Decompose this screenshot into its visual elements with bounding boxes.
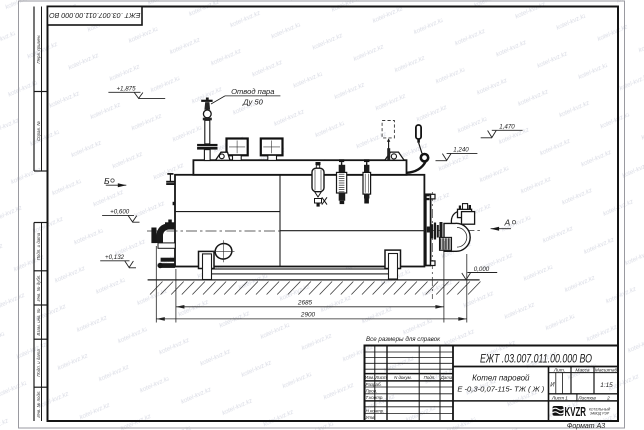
svg-text:+1,875: +1,875 <box>116 86 136 93</box>
svg-text:Дата: Дата <box>440 375 453 380</box>
svg-text:Подп. и дата: Подп. и дата <box>36 232 41 260</box>
svg-text:+0,132: +0,132 <box>105 254 125 261</box>
svg-text:И: И <box>550 383 555 389</box>
svg-text:Инв. № подл.: Инв. № подл. <box>36 390 41 417</box>
svg-text:Пров.: Пров. <box>366 388 378 393</box>
svg-text:+0,600: +0,600 <box>110 209 130 216</box>
svg-text:1,470: 1,470 <box>499 124 515 131</box>
svg-text:Все размеры для справок: Все размеры для справок <box>366 336 441 343</box>
svg-text:Формат А3: Формат А3 <box>567 423 605 430</box>
svg-text:Т.контр.: Т.контр. <box>366 395 384 400</box>
svg-text:Разраб.: Разраб. <box>366 382 382 387</box>
svg-text:Лит.: Лит. <box>553 367 565 373</box>
svg-text:1: 1 <box>565 395 568 401</box>
svg-text:Инв. № дубл.: Инв. № дубл. <box>36 274 41 301</box>
svg-text:KVZR: KVZR <box>565 404 587 419</box>
svg-text:ЗАВОД РЭР: ЗАВОД РЭР <box>590 412 610 416</box>
svg-text:Масса: Масса <box>575 367 590 373</box>
svg-text:Подп.: Подп. <box>424 375 436 380</box>
svg-text:Изм.: Изм. <box>365 375 374 380</box>
svg-text:0,000: 0,000 <box>474 266 490 273</box>
svg-text:Отвод пара: Отвод пара <box>231 87 274 96</box>
svg-text:Лист: Лист <box>374 375 387 380</box>
svg-text:Лист: Лист <box>551 395 564 401</box>
svg-text:2685: 2685 <box>297 300 313 307</box>
svg-text:1,240: 1,240 <box>453 147 469 154</box>
svg-text:ЕЖТ .03.007.011.00.000 ВО: ЕЖТ .03.007.011.00.000 ВО <box>480 353 592 365</box>
svg-text:2: 2 <box>606 395 610 401</box>
svg-text:А: А <box>504 217 511 227</box>
svg-text:Справ. №: Справ. № <box>36 121 41 141</box>
svg-text:Листов: Листов <box>577 395 596 401</box>
svg-text:N докум.: N докум. <box>394 375 412 380</box>
svg-text:Масштаб: Масштаб <box>595 367 618 373</box>
svg-text:Подп. и дата: Подп. и дата <box>36 349 41 377</box>
svg-text:Б: Б <box>104 176 110 186</box>
svg-text:Н.контр.: Н.контр. <box>366 409 385 414</box>
svg-text:1:15: 1:15 <box>600 382 613 389</box>
svg-text:2900: 2900 <box>300 312 316 319</box>
svg-text:Перв. примен.: Перв. примен. <box>36 34 41 63</box>
svg-text:Котел паровой: Котел паровой <box>472 374 530 383</box>
svg-text:Е -0,3-0,07-115- ТЖ ( Ж ): Е -0,3-0,07-115- ТЖ ( Ж ) <box>457 385 544 394</box>
svg-text:Утв.: Утв. <box>366 415 376 420</box>
svg-text:Ду 50: Ду 50 <box>242 98 264 107</box>
svg-text:Взам. инв. №: Взам. инв. № <box>36 308 41 335</box>
svg-text:ЕЖТ .03.007.011.00.000 ВО: ЕЖТ .03.007.011.00.000 ВО <box>49 11 141 20</box>
